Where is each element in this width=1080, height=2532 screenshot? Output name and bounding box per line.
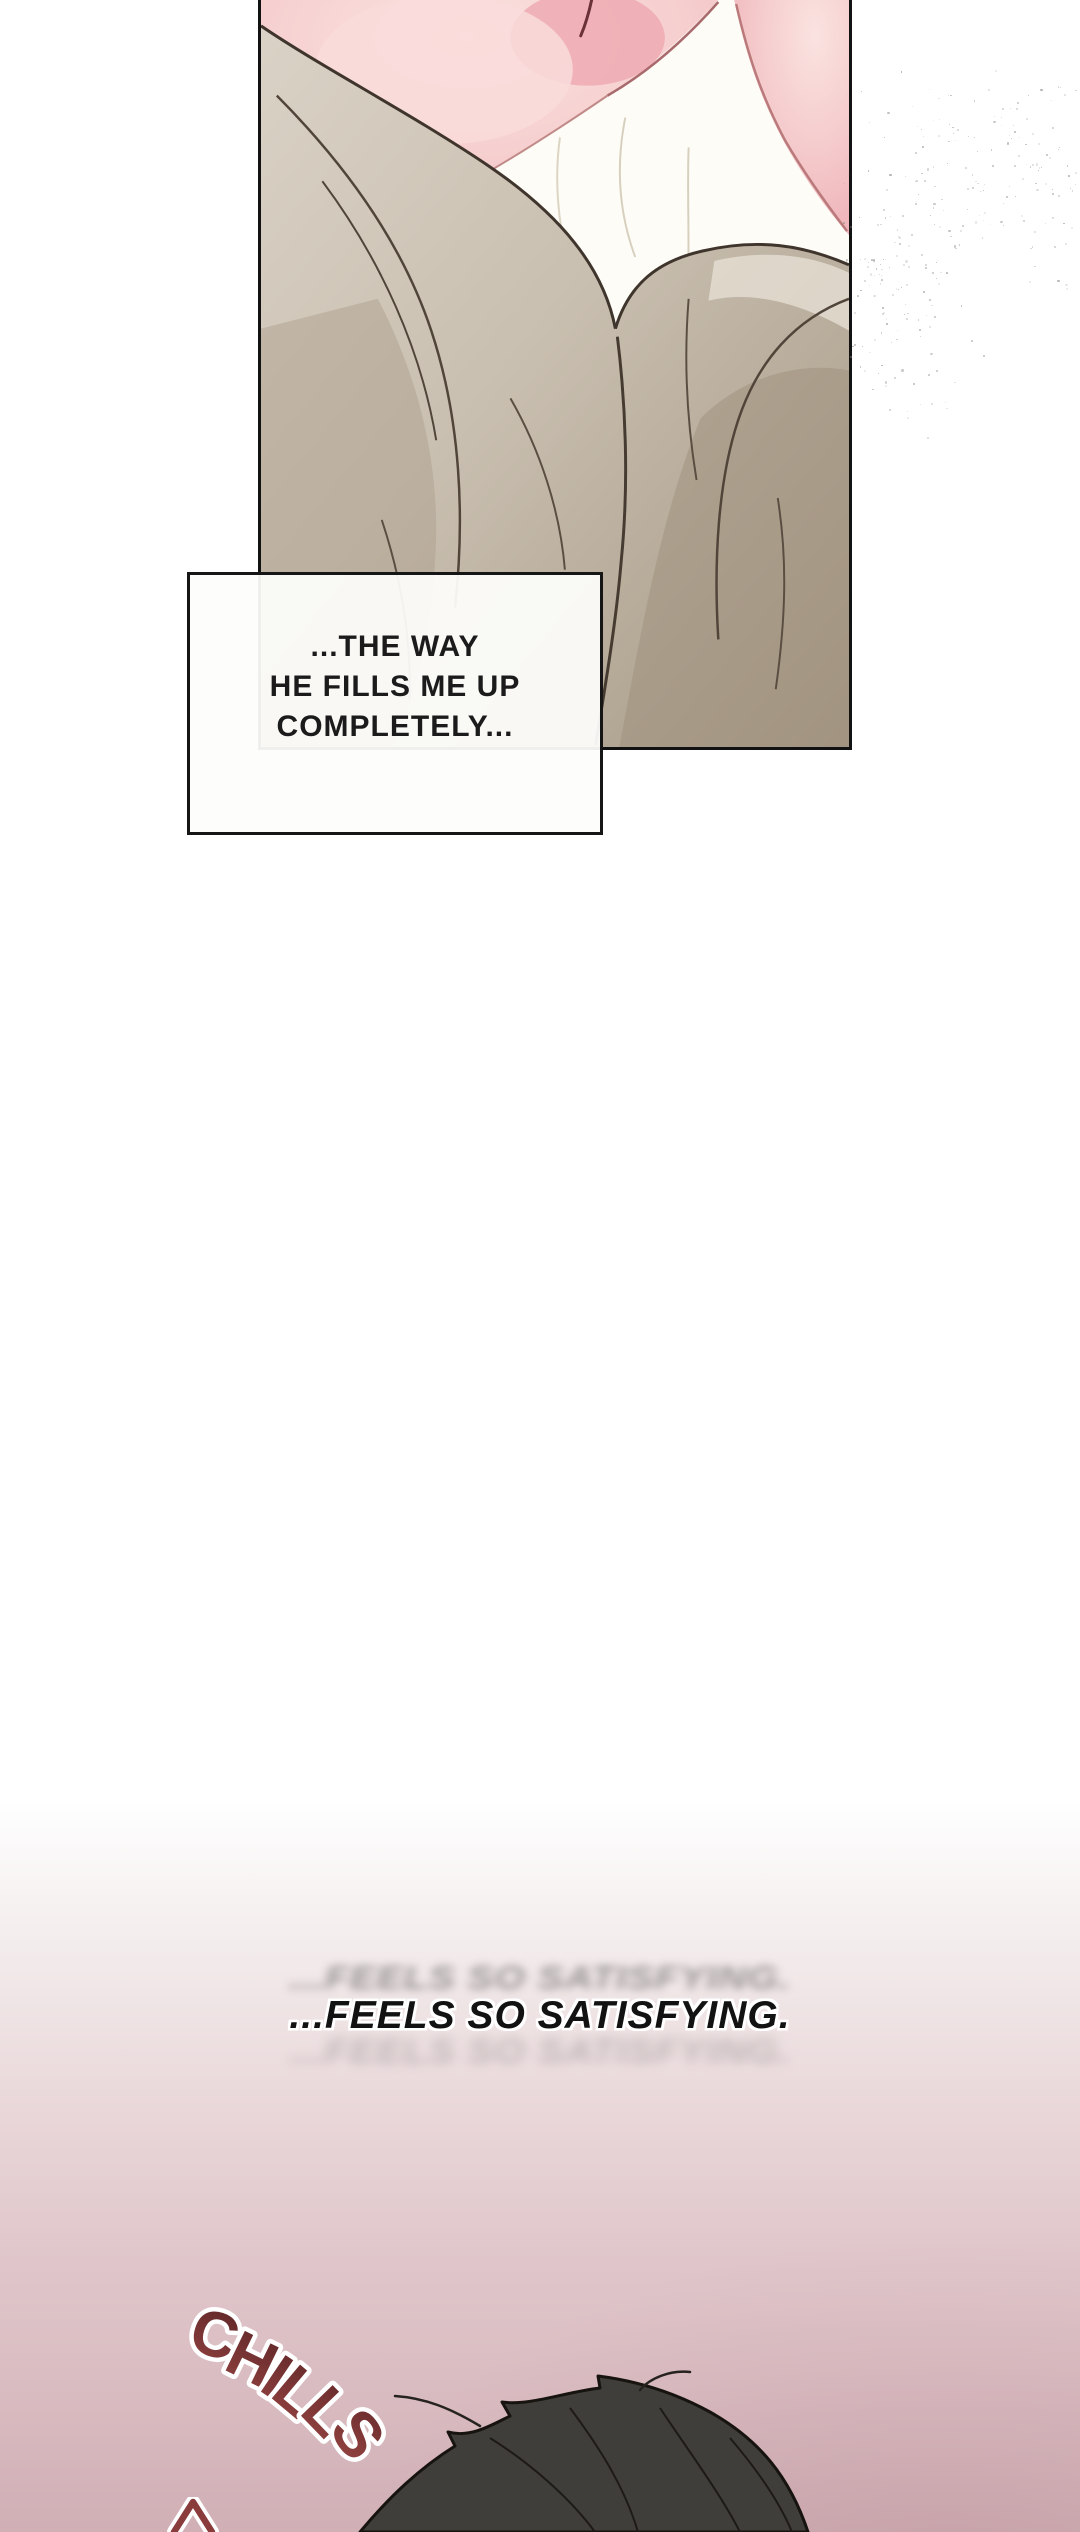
hair-wisp bbox=[395, 2396, 480, 2426]
narration-block: ...FEELS SO SATISFYING. ...FEELS SO SATI… bbox=[0, 1960, 1080, 2090]
dialogue-line: HE FILLS ME UP bbox=[190, 667, 600, 707]
dialogue-line: COMPLETELY... bbox=[190, 707, 600, 747]
narration-ghost-top: ...FEELS SO SATISFYING. bbox=[0, 1960, 1080, 1997]
speech-bubble: ...THE WAY HE FILLS ME UP COMPLETELY... bbox=[187, 572, 603, 835]
hair-silhouette bbox=[360, 2376, 808, 2532]
sfx-partial-letter bbox=[160, 2497, 232, 2532]
webtoon-page: ...THE WAY HE FILLS ME UP COMPLETELY... … bbox=[0, 0, 1080, 2532]
sfx-partial-stroke bbox=[174, 2502, 212, 2532]
dialogue-line: ...THE WAY bbox=[190, 627, 600, 667]
narration-ghost-bottom: ...FEELS SO SATISFYING. bbox=[0, 2032, 1080, 2072]
narration-text: ...FEELS SO SATISFYING. bbox=[0, 1994, 1080, 2038]
character-hair-illustration bbox=[340, 2368, 920, 2532]
